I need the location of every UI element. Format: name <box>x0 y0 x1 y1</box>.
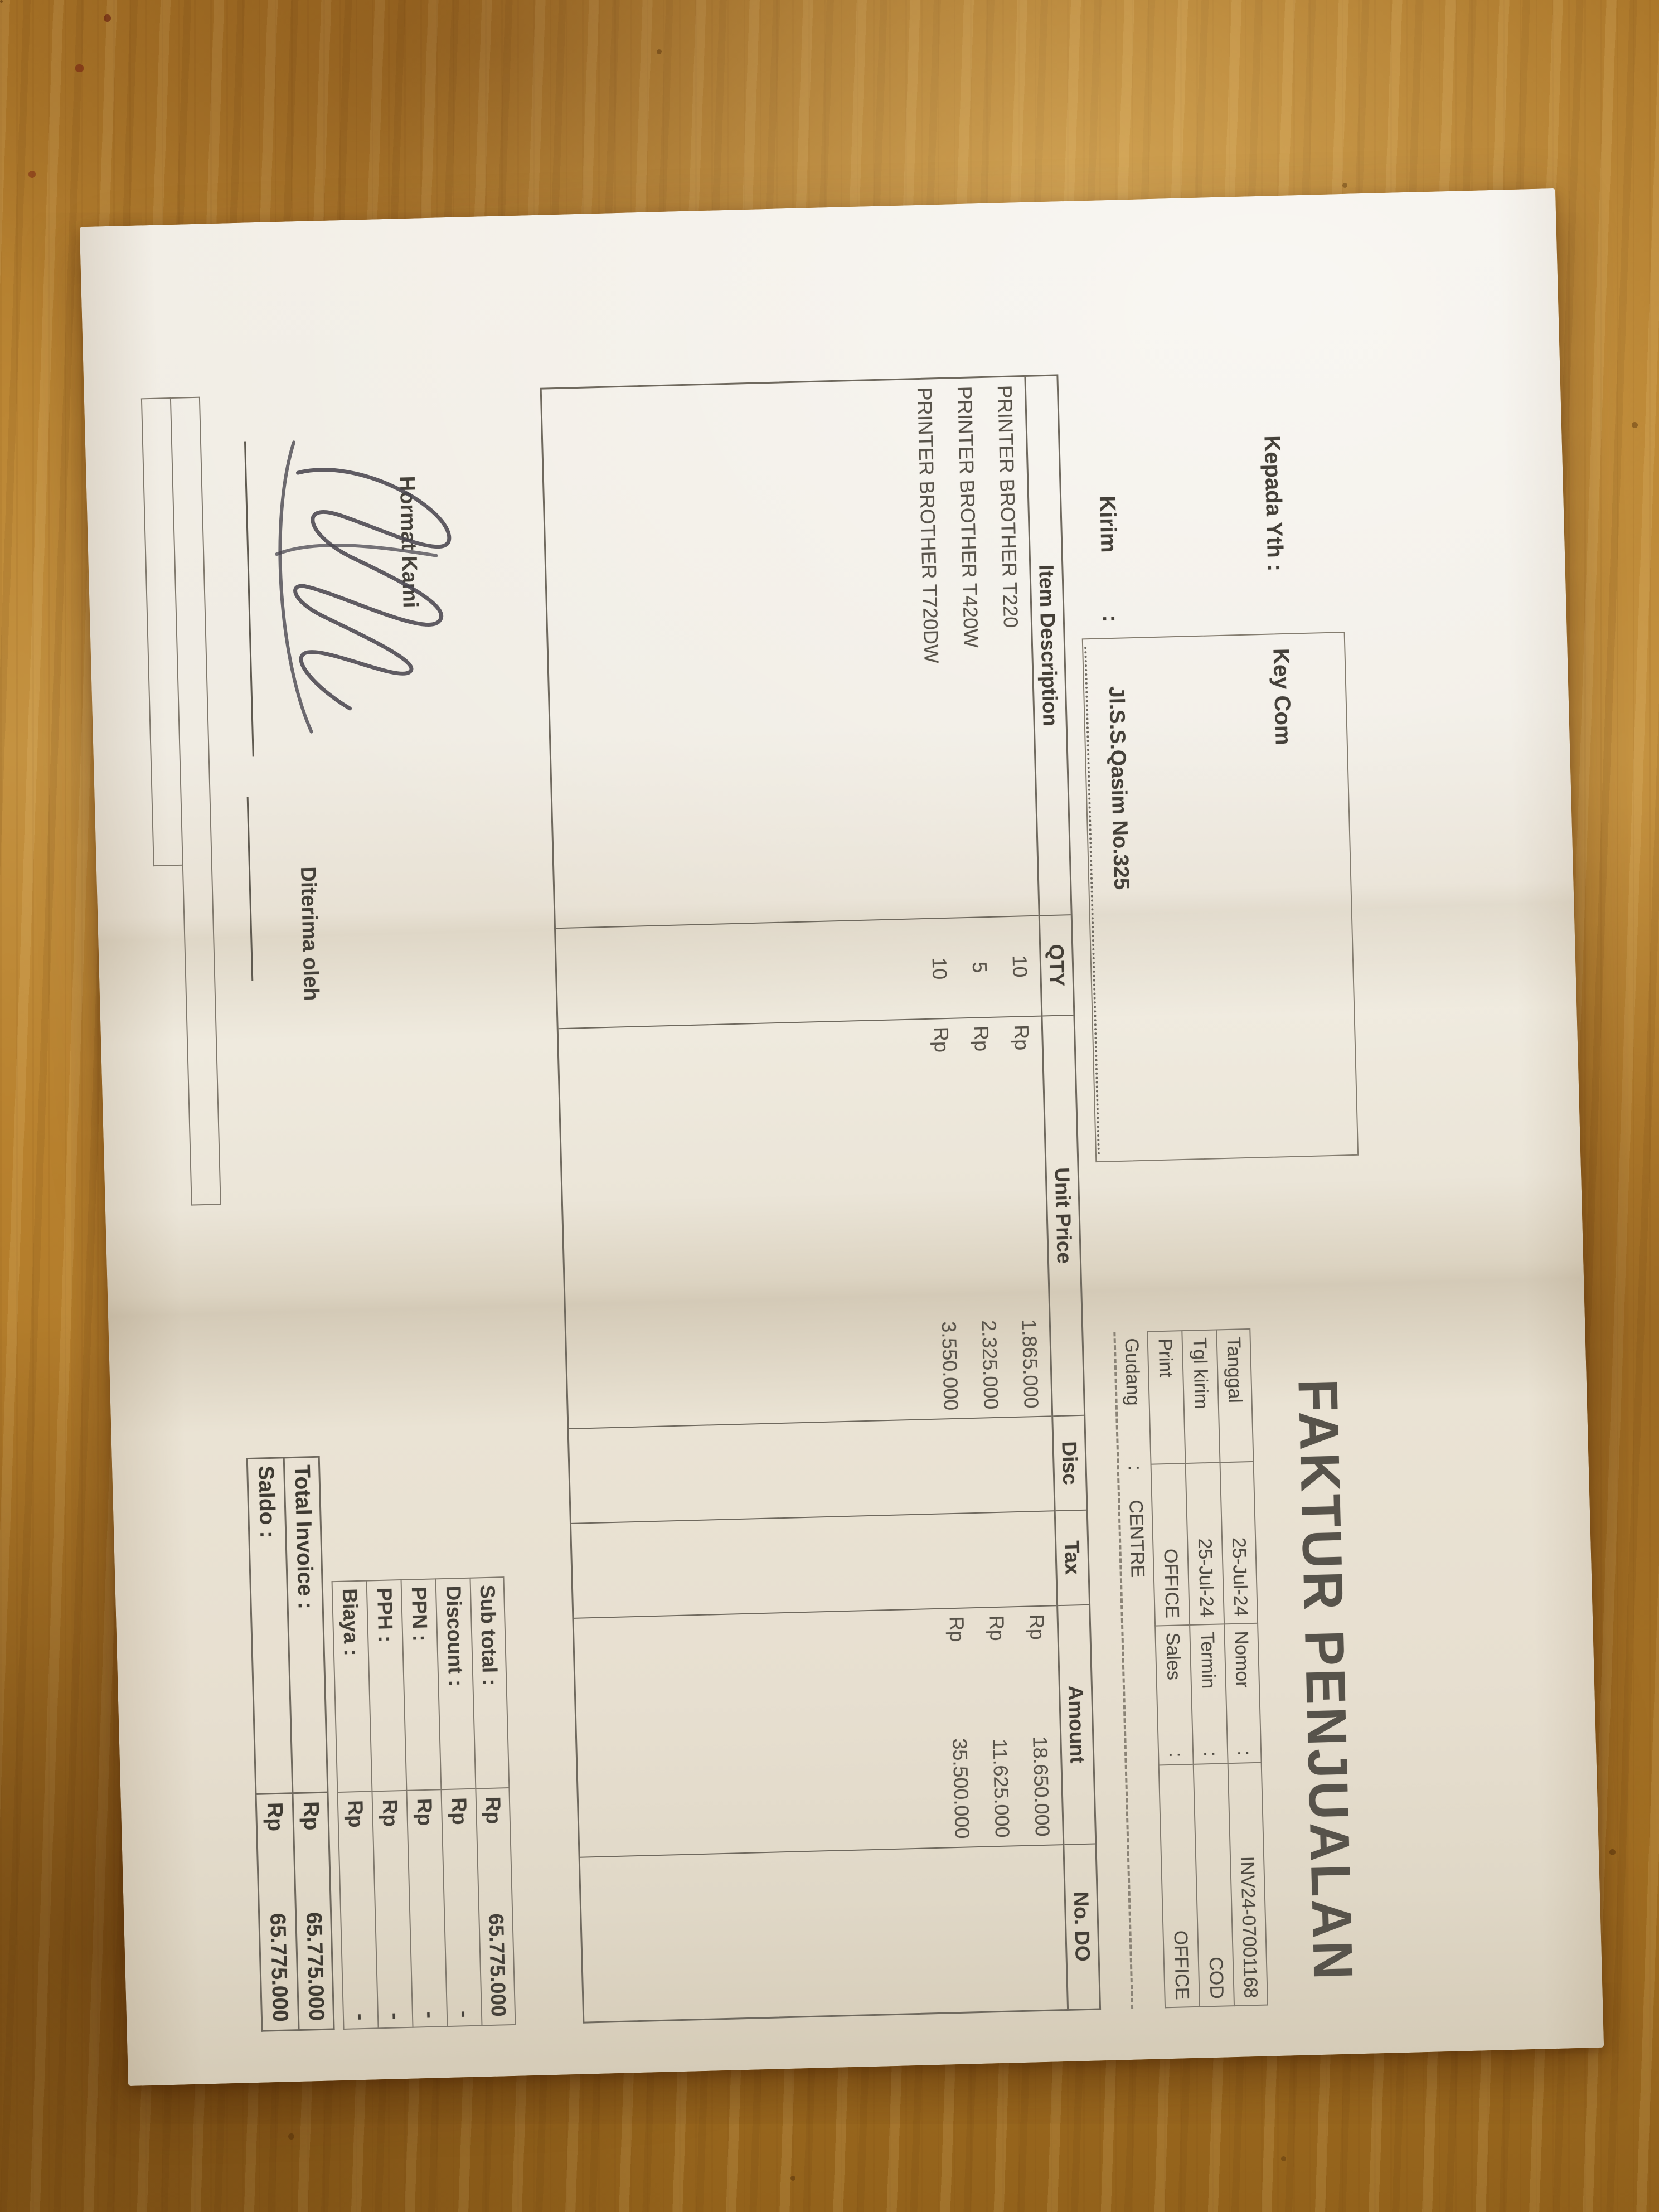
amount-value: 35.500.000 <box>948 1738 974 1839</box>
subtotal-label: Sub total : <box>469 1576 510 1789</box>
amount-value: 11.625.000 <box>988 1739 1014 1839</box>
sales-value: OFFICE <box>1158 1765 1199 2008</box>
biaya-label: Biaya : <box>332 1580 372 1793</box>
signature-scribble <box>235 415 490 778</box>
grand-total-table: Total Invoice : Rp65.775.000 Saldo : Rp6… <box>246 1456 335 2032</box>
header-qty: QTY <box>1040 915 1074 1016</box>
biaya-amount: - <box>349 2013 372 2020</box>
customer-name: Key Com <box>1268 648 1296 746</box>
item-amount-2: Rp11.625.000 <box>976 1607 1022 1846</box>
item-qty-3: 10 <box>918 918 961 1018</box>
gudang-value: CENTRE <box>1125 1500 1149 1578</box>
unit-price-value: 1.865.000 <box>1017 1319 1043 1409</box>
nomor-label: Nomor: <box>1224 1624 1262 1764</box>
currency-rp: Rp <box>262 1802 287 1831</box>
invoice-title: FAKTUR PENJUALAN <box>1284 1354 1365 2007</box>
termin-word: Termin <box>1196 1632 1220 1689</box>
invoice-paper-sheet: FAKTUR PENJUALAN Kepada Yth : Key Com Ki… <box>80 188 1604 2086</box>
amount-value: 18.650.000 <box>1028 1736 1054 1837</box>
header-amount: Amount <box>1058 1605 1095 1845</box>
pph-label: PPH : <box>366 1579 406 1792</box>
biaya-value: Rp- <box>337 1792 377 2029</box>
kirim-label: Kirim <box>1094 496 1121 553</box>
nomor-value: INV24-07001168 <box>1228 1763 1268 2006</box>
item-amount-1: Rp18.650.000 <box>1016 1606 1063 1845</box>
termin-colon: : <box>1200 1751 1221 1757</box>
pph-amount: - <box>384 2012 407 2020</box>
header-tax: Tax <box>1056 1511 1089 1606</box>
column-amount: Rp18.650.000 Rp11.625.000 Rp35.500.000 <box>574 1606 1063 1858</box>
saldo-value: Rp65.775.000 <box>255 1794 298 2032</box>
discount-value: Rp- <box>440 1789 481 2027</box>
tgl-kirim-label: Tgl kirim <box>1181 1330 1219 1464</box>
item-amount-3: Rp35.500.000 <box>936 1608 982 1847</box>
kirim-colon: : <box>1098 614 1123 623</box>
sales-word: Sales <box>1162 1632 1185 1680</box>
currency-rp: Rp <box>481 1796 505 1824</box>
sales-label: Sales: <box>1154 1626 1193 1766</box>
currency-rp: Rp <box>945 1616 969 1642</box>
currency-rp: Rp <box>447 1797 471 1825</box>
total-invoice-value: Rp65.775.000 <box>292 1793 335 2031</box>
currency-rp: Rp <box>343 1800 367 1828</box>
diterima-oleh-label: Diterima oleh <box>294 827 324 1040</box>
tgl-kirim-value: 25-Jul-24 <box>1185 1463 1224 1626</box>
saldo-amount: 65.775.000 <box>265 1913 293 2022</box>
tanggal-value: 25-Jul-24 <box>1220 1462 1259 1625</box>
column-disc <box>569 1417 1054 1524</box>
tanggal-label: Tanggal <box>1216 1328 1254 1463</box>
gudang-label: Gudang <box>1120 1338 1146 1466</box>
column-tax <box>571 1511 1056 1618</box>
item-qty-1: 10 <box>998 916 1041 1016</box>
currency-rp: Rp <box>378 1799 402 1827</box>
currency-rp: Rp <box>969 1025 993 1051</box>
invoice-document: FAKTUR PENJUALAN Kepada Yth : Key Com Ki… <box>80 188 1604 2086</box>
ppn-label: PPN : <box>400 1578 440 1791</box>
unit-price-value: 3.550.000 <box>937 1321 963 1411</box>
sales-colon: : <box>1165 1752 1187 1758</box>
print-label: Print <box>1147 1330 1185 1465</box>
subtotal-value: Rp65.775.000 <box>475 1788 516 2026</box>
header-disc: Disc <box>1053 1416 1086 1511</box>
currency-rp: Rp <box>985 1615 1009 1641</box>
header-no-do: No. DO <box>1064 1844 1099 2009</box>
gudang-colon: : <box>1124 1465 1147 1500</box>
column-qty: 10 5 10 <box>556 916 1041 1029</box>
total-invoice-amount: 65.775.000 <box>301 1912 328 2021</box>
kepada-yth-label: Kepada Yth : <box>1259 435 1287 572</box>
subtotal-amount: 65.775.000 <box>484 1913 510 2017</box>
photo-of-invoice-on-table: FAKTUR PENJUALAN Kepada Yth : Key Com Ki… <box>0 0 1659 2212</box>
items-table-body: PRINTER BROTHER T220 PRINTER BROTHER T42… <box>542 377 1067 2022</box>
termin-value: COD <box>1193 1764 1234 2007</box>
wood-grain-specks <box>0 0 3 3</box>
column-item-description: PRINTER BROTHER T220 PRINTER BROTHER T42… <box>542 377 1039 929</box>
item-qty-2: 5 <box>958 918 1001 1017</box>
termin-label: Termin: <box>1189 1624 1228 1765</box>
pph-value: Rp- <box>371 1791 412 2029</box>
currency-rp: Rp <box>298 1801 323 1831</box>
unit-price-value: 2.325.000 <box>977 1320 1003 1410</box>
ppn-value: Rp- <box>406 1790 447 2027</box>
discount-amount: - <box>453 2010 476 2017</box>
currency-rp: Rp <box>929 1026 953 1052</box>
ppn-amount: - <box>418 2011 442 2019</box>
currency-rp: Rp <box>413 1798 436 1826</box>
column-no-do <box>580 1845 1067 2022</box>
currency-rp: Rp <box>1025 1614 1049 1640</box>
items-table: Item Description QTY Unit Price Disc Tax… <box>540 374 1102 2023</box>
discount-label: Discount : <box>435 1578 475 1790</box>
totals-table: Sub total : Rp65.775.000 Discount : Rp- … <box>332 1576 516 2030</box>
nomor-word: Nomor <box>1230 1631 1254 1688</box>
print-value: OFFICE <box>1151 1464 1190 1627</box>
invoice-info-table: Tanggal 25-Jul-24 Nomor: INV24-07001168 … <box>1113 1328 1268 2009</box>
diterima-signature-line <box>247 797 254 981</box>
column-unit-price: Rp1.865.000 Rp2.325.000 Rp3.550.000 <box>559 1016 1052 1429</box>
currency-rp: Rp <box>1010 1025 1034 1051</box>
nomor-colon: : <box>1234 1750 1255 1756</box>
